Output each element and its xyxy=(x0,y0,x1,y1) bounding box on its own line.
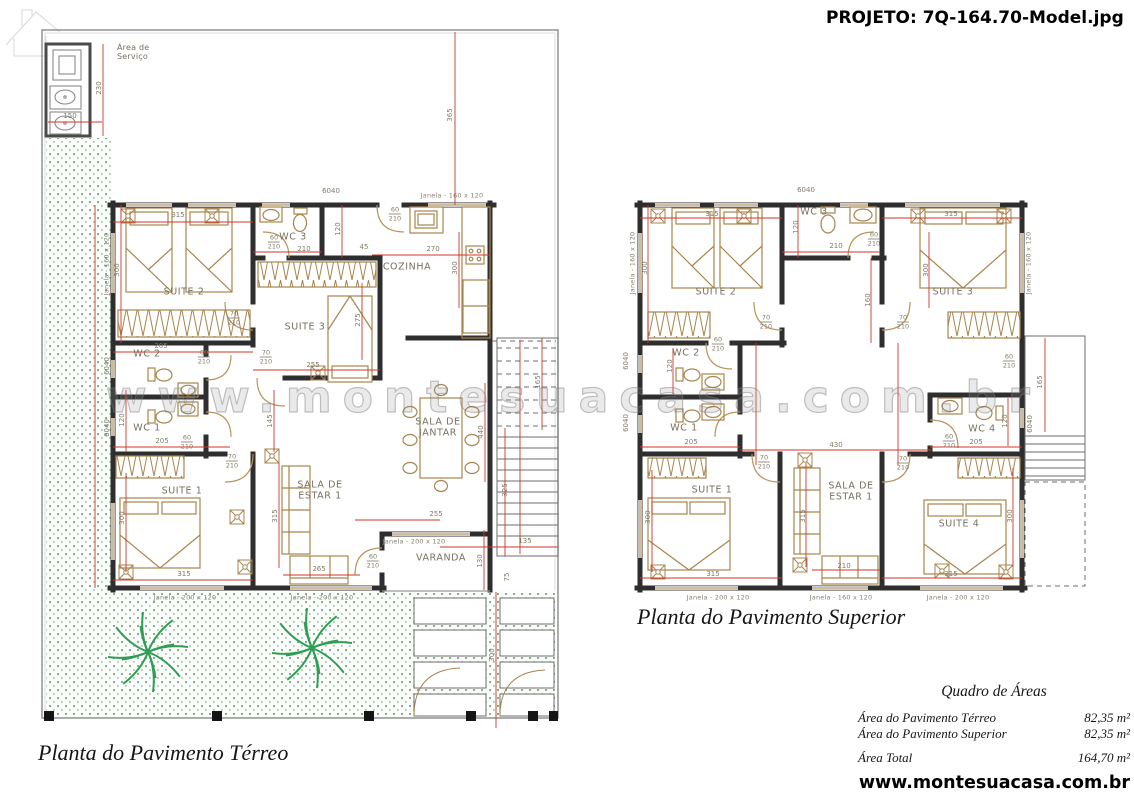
area-table-title: Quadro de Áreas xyxy=(858,683,1130,701)
garden xyxy=(46,138,556,716)
website-url: www.montesuacasa.com.br xyxy=(852,773,1130,793)
area-table-row: Área do Pavimento Superior82,35 m² xyxy=(858,726,1130,742)
project-title: PROJETO: 7Q-164.70-Model.jpg xyxy=(826,8,1124,28)
area-table-row: Área do Pavimento Térreo82,35 m² xyxy=(858,710,1130,726)
area-table-row: Área Total164,70 m² xyxy=(858,750,1130,766)
caption-ground-floor: Planta do Pavimento Térreo xyxy=(38,740,288,766)
area-table-rows: Área do Pavimento Térreo82,35 m²Área do … xyxy=(858,710,1130,766)
area-table: Quadro de Áreas Área do Pavimento Térreo… xyxy=(858,683,1130,766)
watermark: www.montesuacasa.com.br xyxy=(106,372,1041,423)
ground-floor-stairs xyxy=(492,338,558,556)
caption-upper-floor: Planta do Pavimento Superior xyxy=(637,604,905,630)
blueprint-canvas: Área de ServiçoSUITE 2WC 3SUITE 3COZINHA… xyxy=(0,0,1134,800)
